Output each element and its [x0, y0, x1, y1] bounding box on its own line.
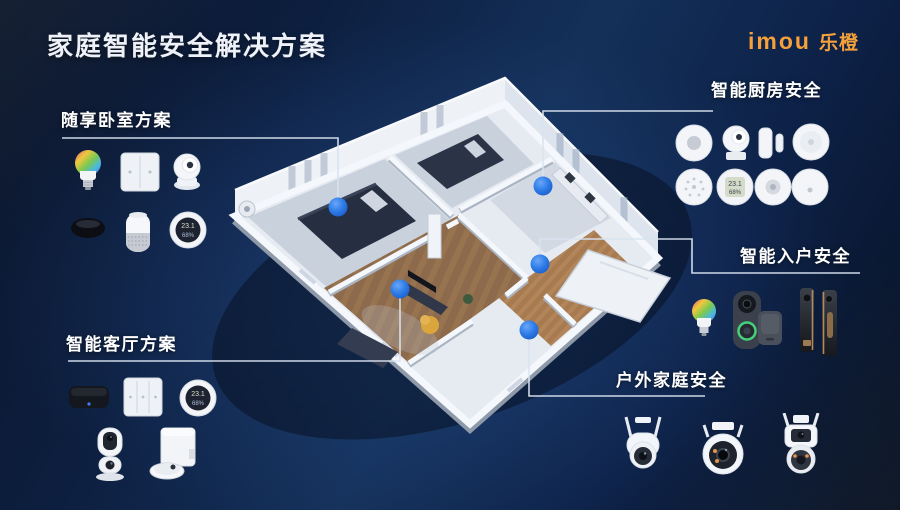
svg-text:68%: 68%	[192, 401, 205, 407]
section-label-living: 智能客厅方案	[66, 330, 177, 355]
marker-kitchen[interactable]	[534, 177, 553, 196]
marker-entry[interactable]	[531, 255, 550, 274]
smart-speaker-icon	[118, 207, 158, 253]
svg-text:23.1: 23.1	[191, 391, 205, 398]
presence-sensor-icon	[69, 215, 107, 241]
brand-logo-en: imou	[748, 28, 811, 55]
marker-outdoor[interactable]	[520, 321, 539, 340]
svg-text:23.1: 23.1	[181, 223, 195, 230]
smart-bulb-icon	[687, 296, 721, 338]
gas-detector-icon	[675, 124, 713, 162]
temp-humidity-sensor-icon: 23.1 68%	[179, 379, 217, 417]
indoor-camera-icon	[168, 150, 206, 192]
smart-button-icon	[791, 168, 829, 206]
marker-bedroom[interactable]	[329, 198, 348, 217]
temp-humidity-sensor-icon: 23.1 68%	[169, 211, 207, 249]
ptz-outdoor-camera-icon	[613, 415, 673, 475]
smoke-detector-icon	[792, 123, 830, 161]
svg-text:68%: 68%	[729, 190, 742, 196]
section-label-bedroom: 随享卧室方案	[61, 106, 172, 131]
mini-camera-icon	[716, 122, 756, 164]
section-label-entry: 智能入户安全	[740, 242, 851, 267]
section-label-outdoor: 户外家庭安全	[616, 366, 727, 391]
svg-text:68%: 68%	[182, 233, 195, 239]
smart-door-lock-icon	[798, 286, 842, 356]
dual-lens-outdoor-camera-icon	[769, 413, 831, 477]
brand-logo: imou 乐橙	[748, 28, 859, 55]
smart-bulb-icon	[70, 147, 106, 193]
doorbell-chime-icon	[757, 310, 783, 346]
robot-vacuum-station-icon	[145, 425, 201, 481]
lcd-temp-humidity-sensor-icon: 23.1 68%	[716, 168, 754, 206]
wall-switch-2gang-icon	[120, 152, 160, 192]
svg-text:23.1: 23.1	[728, 181, 742, 188]
page-title: 家庭智能安全解决方案	[47, 26, 327, 63]
marker-living[interactable]	[391, 280, 410, 299]
motion-sensor-icon	[754, 168, 792, 206]
siren-icon	[675, 168, 713, 206]
brand-logo-cn: 乐橙	[819, 28, 859, 55]
section-label-kitchen: 智能厨房安全	[711, 76, 822, 101]
poster: 家庭智能安全解决方案 imou 乐橙 随享卧室方案 智能客厅方案 智能厨房安全 …	[0, 0, 900, 510]
wall-switch-3gang-icon	[123, 377, 163, 417]
door-window-sensor-icon	[754, 124, 792, 162]
dual-lens-indoor-camera-icon	[86, 426, 134, 482]
dome-outdoor-camera-icon	[692, 421, 754, 483]
smart-gateway-icon	[67, 382, 111, 412]
